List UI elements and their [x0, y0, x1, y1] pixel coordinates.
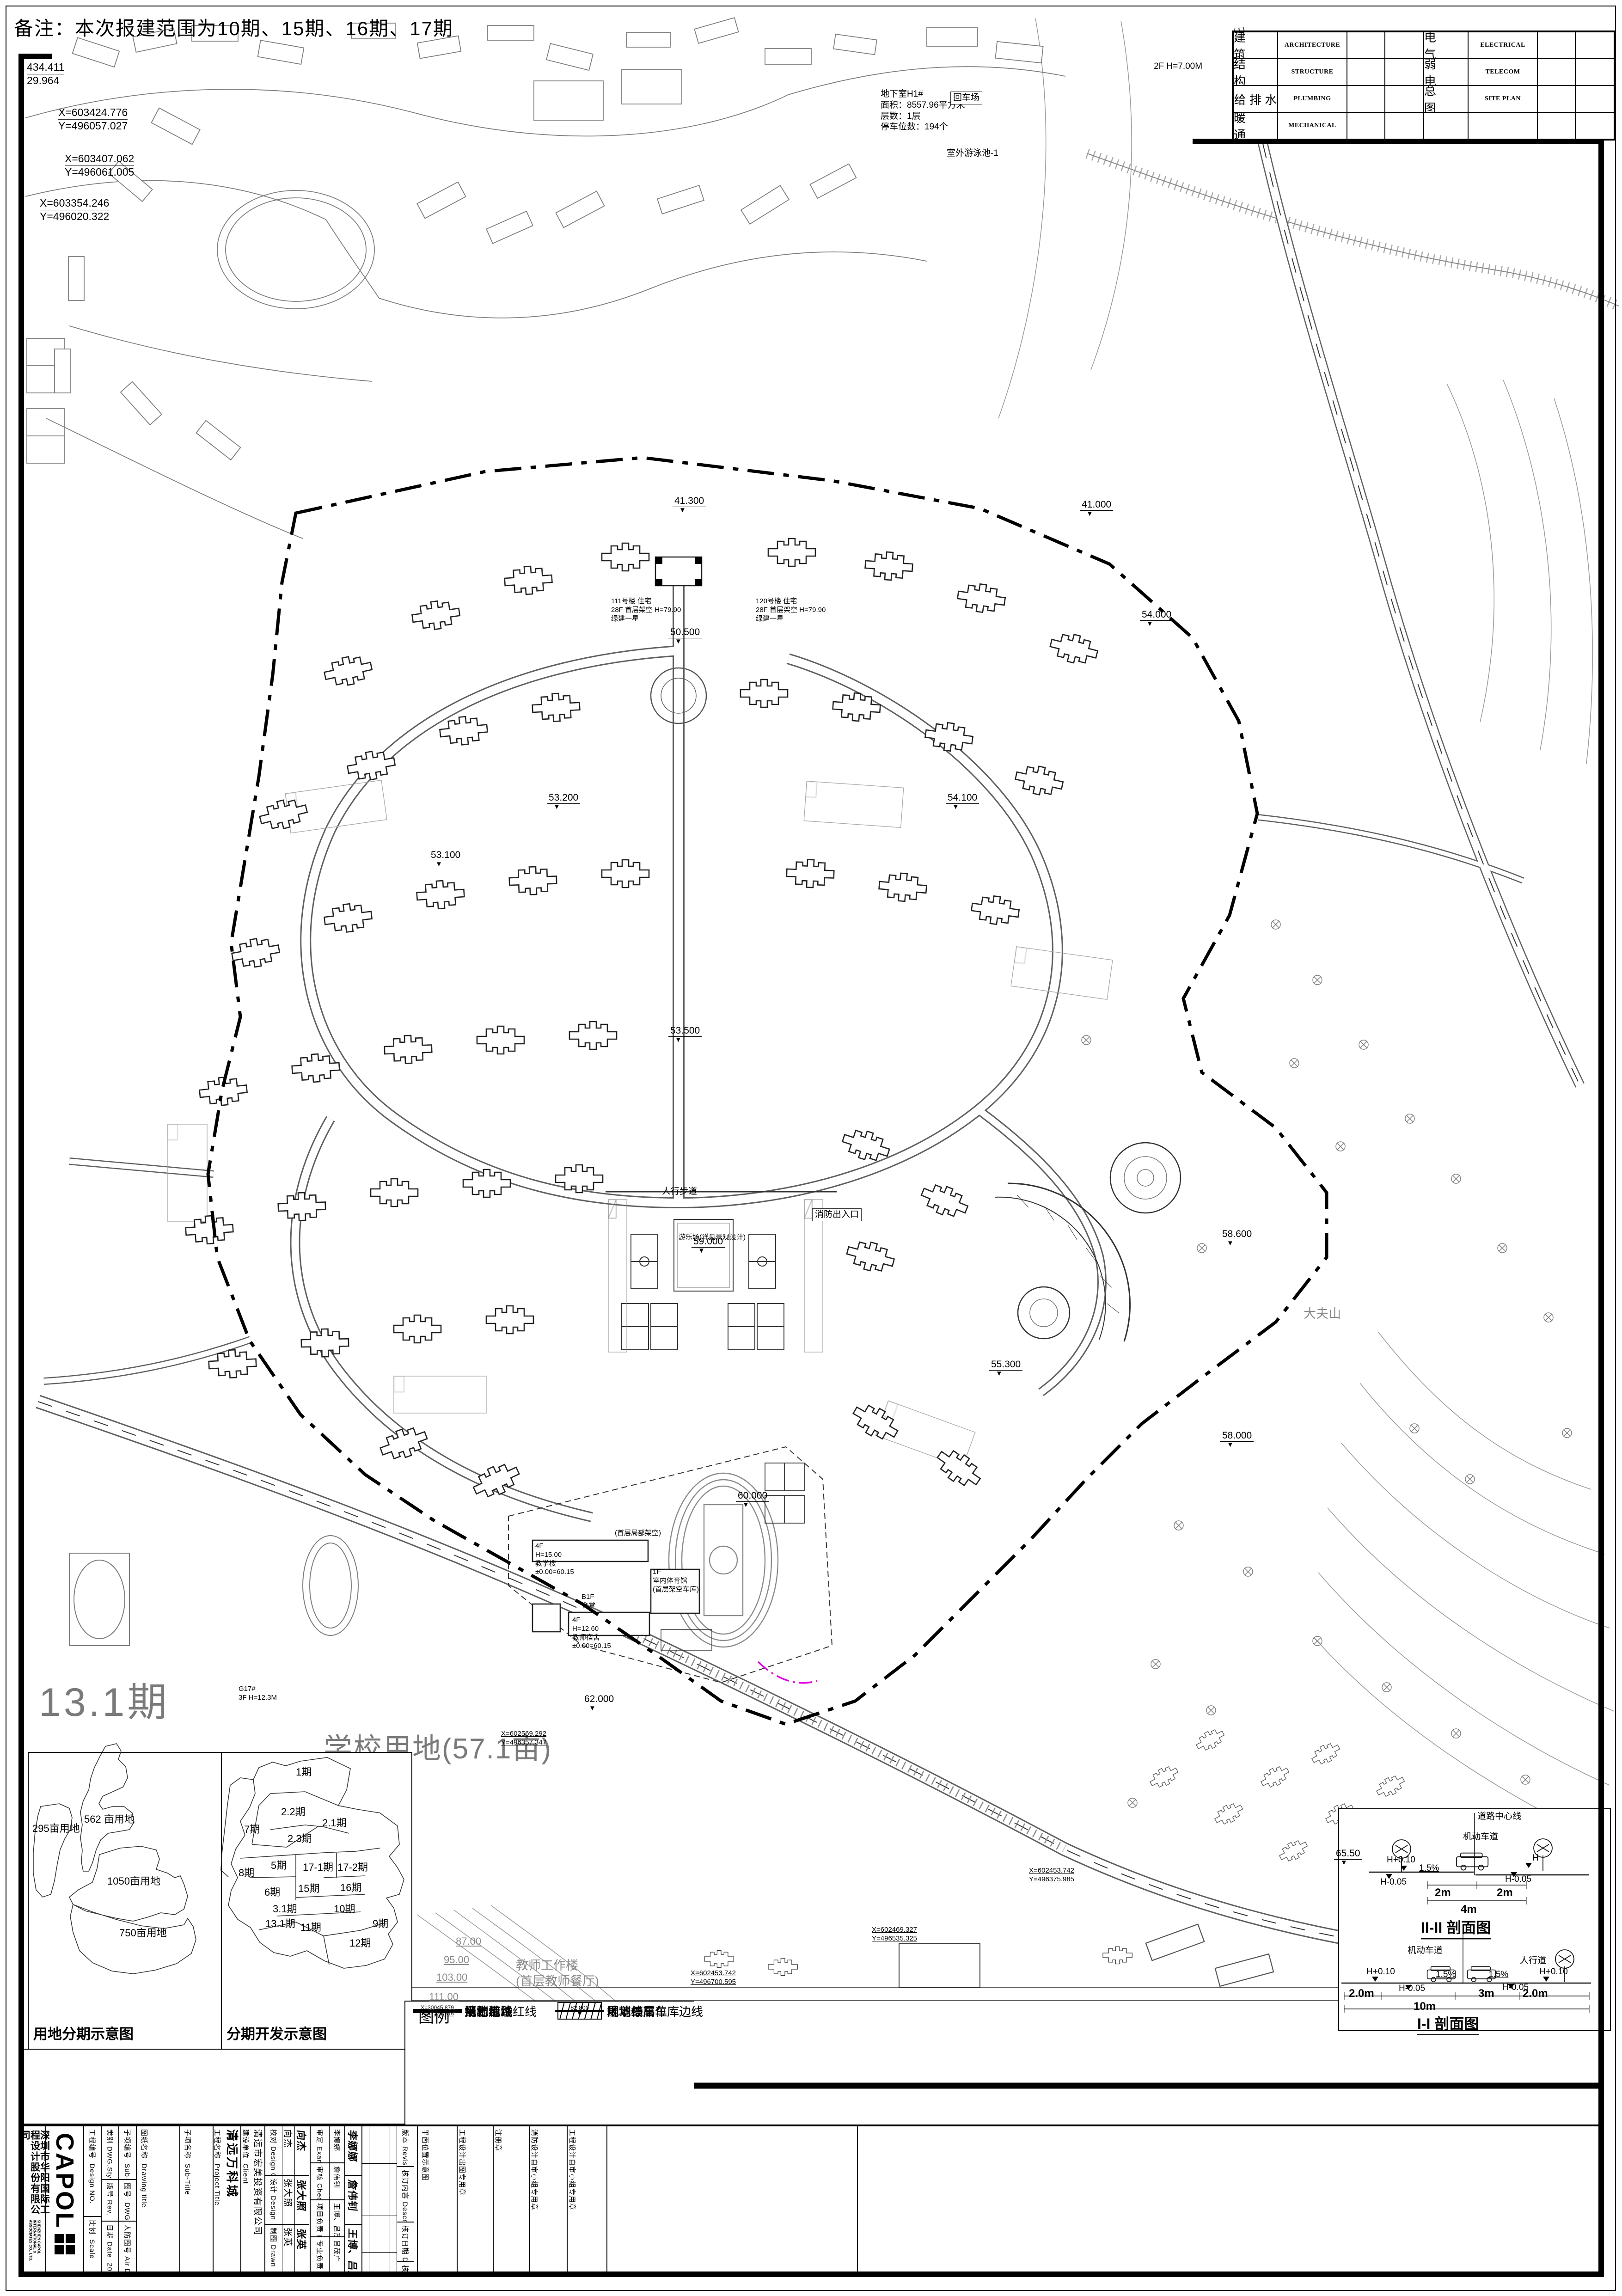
frame-right	[1598, 139, 1604, 2277]
drawing-sheet: 13.1期 学校用地(57.1亩) 图例 消防道路 82.800▼ 场地标高 规…	[0, 0, 1622, 2296]
frame-left	[18, 54, 24, 2277]
frame-top-left-stub	[18, 54, 52, 59]
frame-bottom	[18, 2272, 1604, 2277]
outer-border	[6, 6, 1616, 2291]
frame-top-right	[1193, 139, 1604, 144]
